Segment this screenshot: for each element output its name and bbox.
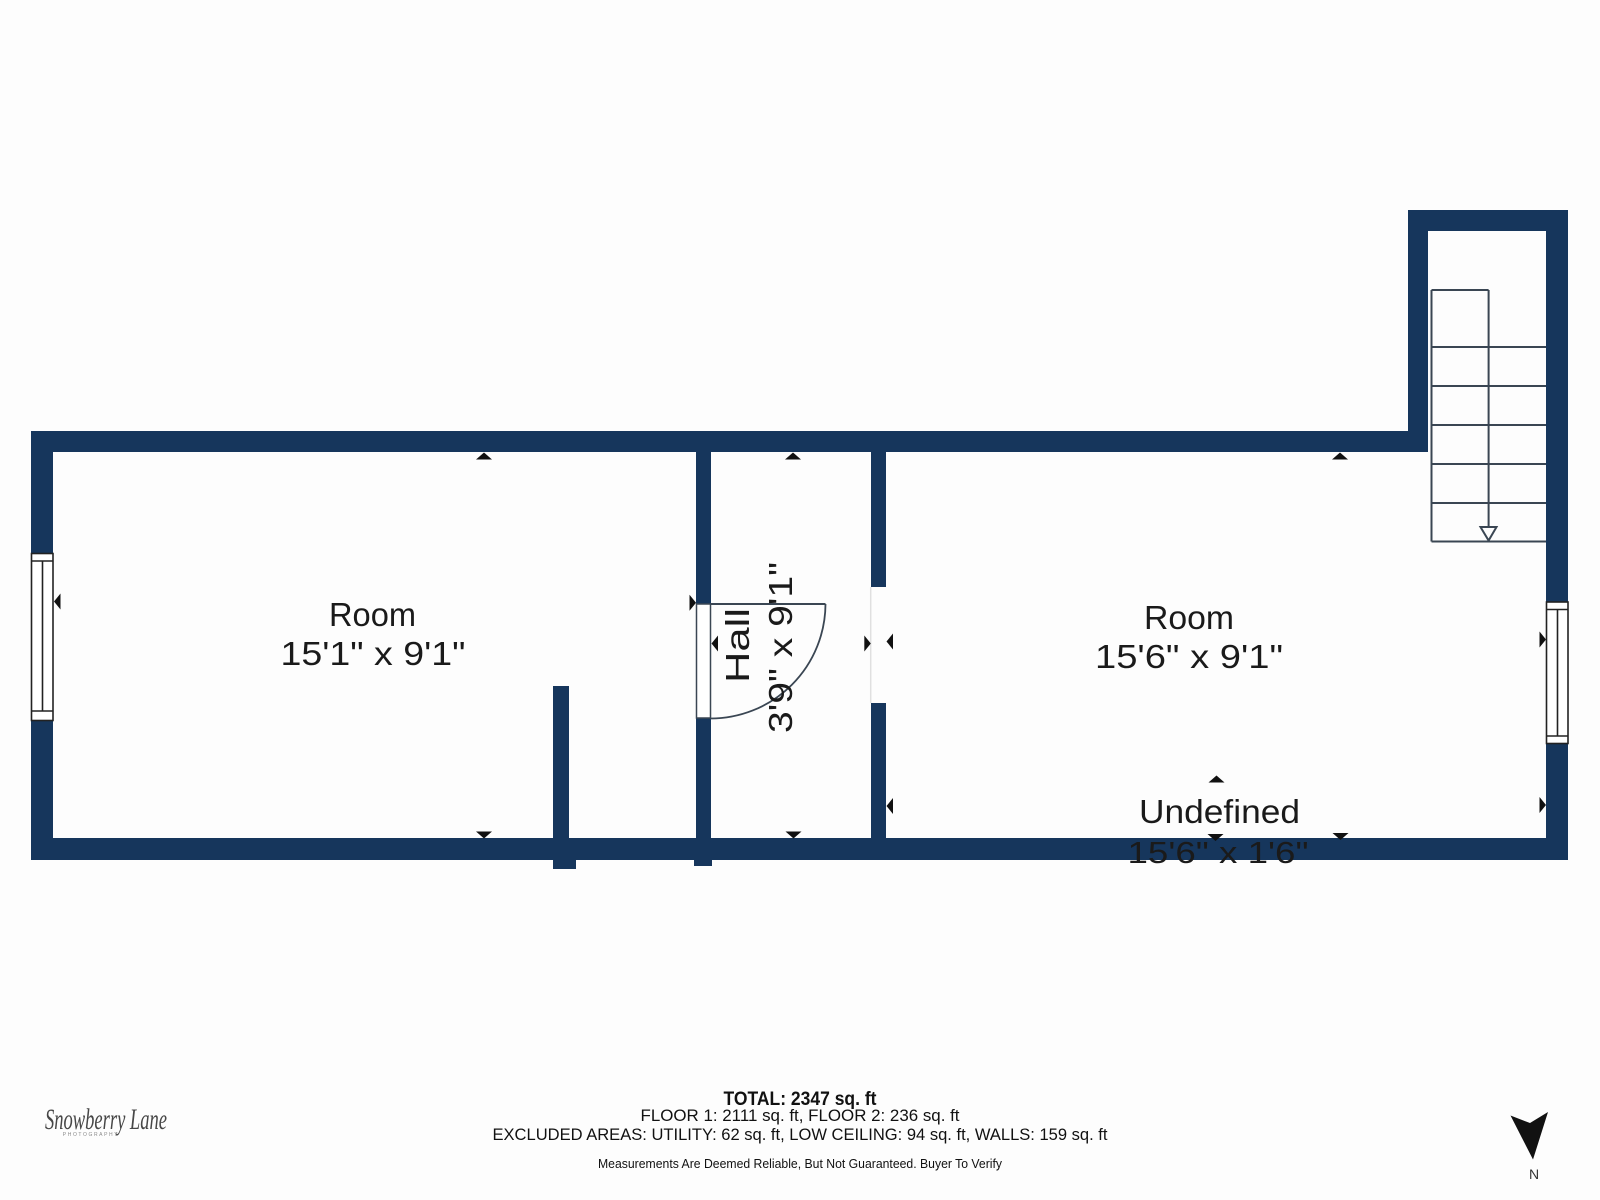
svg-text:Hall: Hall xyxy=(719,608,756,683)
svg-text:Room: Room xyxy=(329,596,416,633)
svg-text:Room: Room xyxy=(1144,599,1234,636)
svg-text:Undefined: Undefined xyxy=(1139,793,1300,830)
svg-text:15'6" x 1'6": 15'6" x 1'6" xyxy=(1128,835,1309,870)
svg-text:PHOTOGRAPHY: PHOTOGRAPHY xyxy=(63,1132,119,1138)
svg-text:15'1" x 9'1": 15'1" x 9'1" xyxy=(281,635,466,672)
svg-text:N: N xyxy=(1529,1166,1539,1182)
svg-text:15'6" x 9'1": 15'6" x 9'1" xyxy=(1095,638,1283,675)
svg-text:EXCLUDED AREAS: UTILITY: 62 sq: EXCLUDED AREAS: UTILITY: 62 sq. ft, LOW … xyxy=(493,1125,1108,1144)
svg-text:3'9" x 9'1": 3'9" x 9'1" xyxy=(762,562,799,733)
svg-text:Measurements Are Deemed Reliab: Measurements Are Deemed Reliable, But No… xyxy=(598,1156,1002,1171)
svg-text:FLOOR 1: 2111 sq. ft, FLOOR 2:: FLOOR 1: 2111 sq. ft, FLOOR 2: 236 sq. f… xyxy=(641,1106,960,1125)
